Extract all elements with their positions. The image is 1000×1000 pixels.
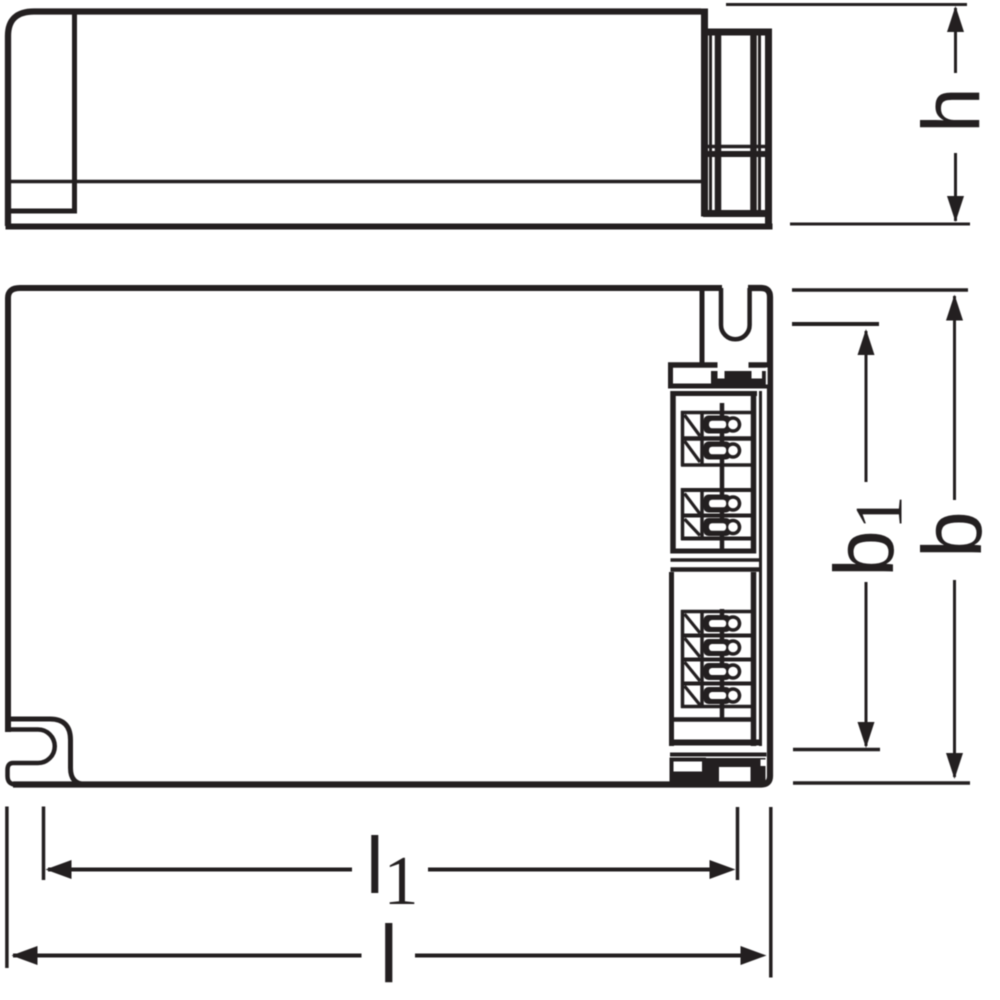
svg-text:b: b [817,530,911,577]
svg-text:l: l [380,909,398,1000]
svg-text:b: b [905,511,999,558]
svg-text:l: l [366,821,384,910]
svg-text:h: h [906,87,997,133]
